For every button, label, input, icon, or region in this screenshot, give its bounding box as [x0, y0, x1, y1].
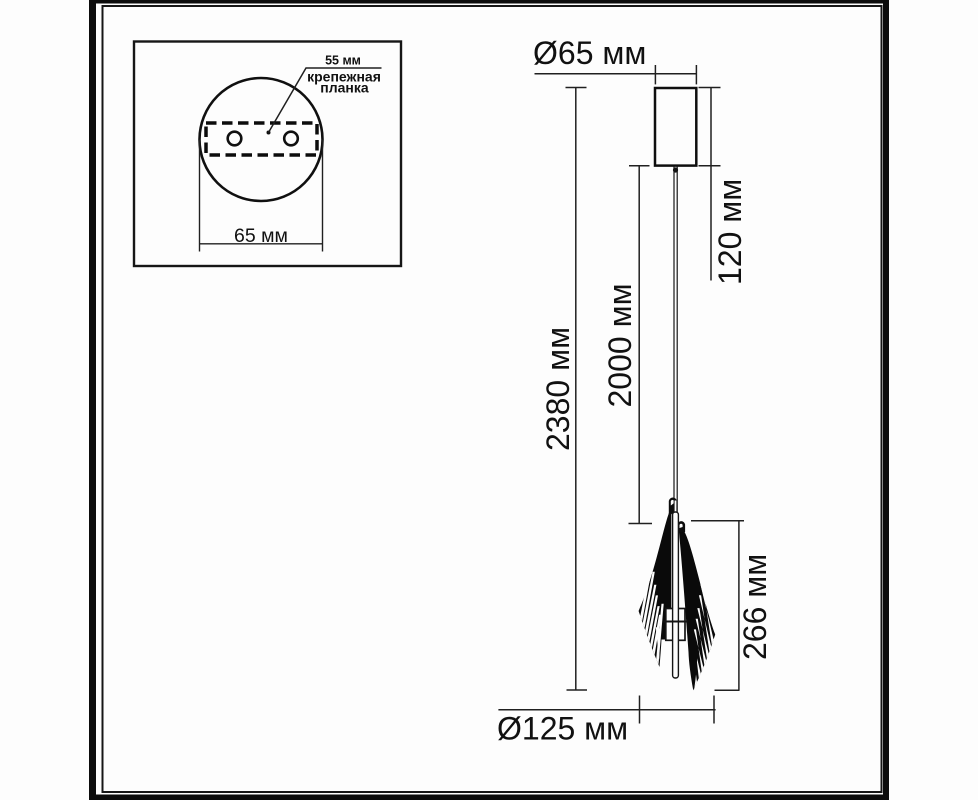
svg-text:Ø65 мм: Ø65 мм [533, 35, 646, 71]
svg-text:55 мм: 55 мм [325, 54, 361, 68]
svg-text:Ø125 мм: Ø125 мм [497, 711, 628, 747]
svg-text:120 мм: 120 мм [712, 179, 748, 285]
svg-text:266 мм: 266 мм [737, 554, 773, 660]
svg-text:2000 мм: 2000 мм [602, 283, 638, 407]
svg-text:2380 мм: 2380 мм [540, 327, 576, 451]
svg-text:65 мм: 65 мм [234, 225, 288, 247]
svg-text:планка: планка [320, 80, 369, 96]
